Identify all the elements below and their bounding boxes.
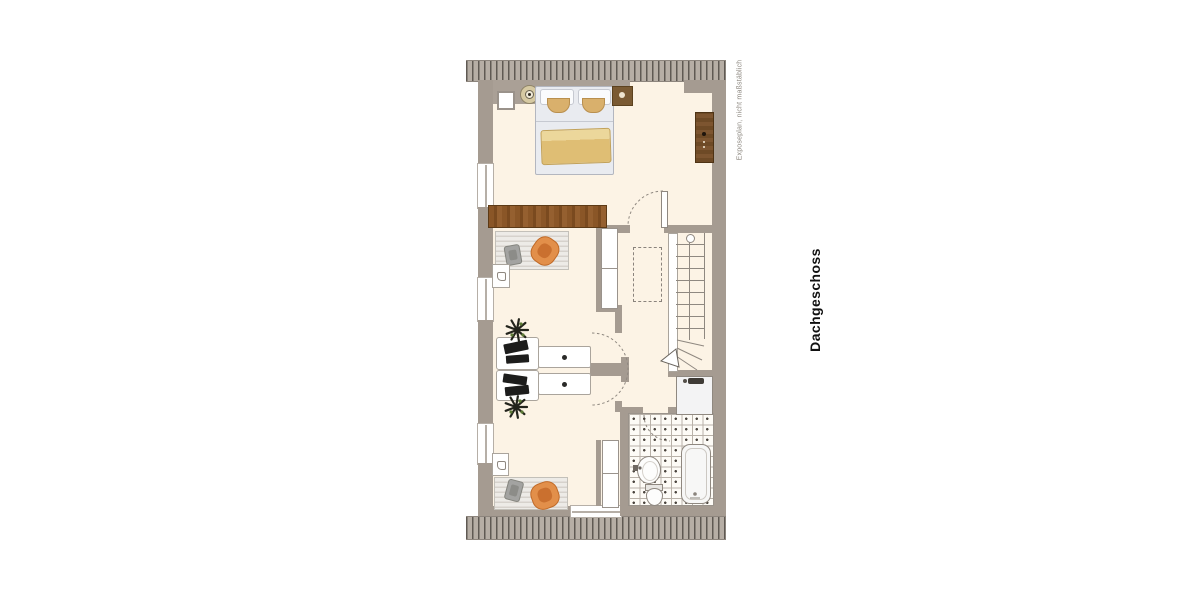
- floorplan-canvas: Dachgeschoss Exposeplan, nicht maßstäbli…: [0, 0, 1200, 600]
- bathtub-drain-icon: [690, 492, 700, 498]
- stair-direction-arrow-icon: [661, 349, 679, 367]
- plan-overlay: [0, 0, 1200, 600]
- door-arc-hall: [592, 333, 628, 405]
- sink-faucet-icon: [633, 465, 642, 471]
- door-arc-bath: [644, 415, 670, 441]
- door-arc-bedroom: [628, 191, 663, 226]
- floor-label: Dachgeschoss: [807, 248, 823, 352]
- plant-icon-top: [507, 319, 528, 341]
- stair-winders: [676, 340, 704, 370]
- disclaimer-label: Exposeplan, nicht maßstäblich: [737, 60, 744, 161]
- plant-icon-bottom: [506, 396, 527, 418]
